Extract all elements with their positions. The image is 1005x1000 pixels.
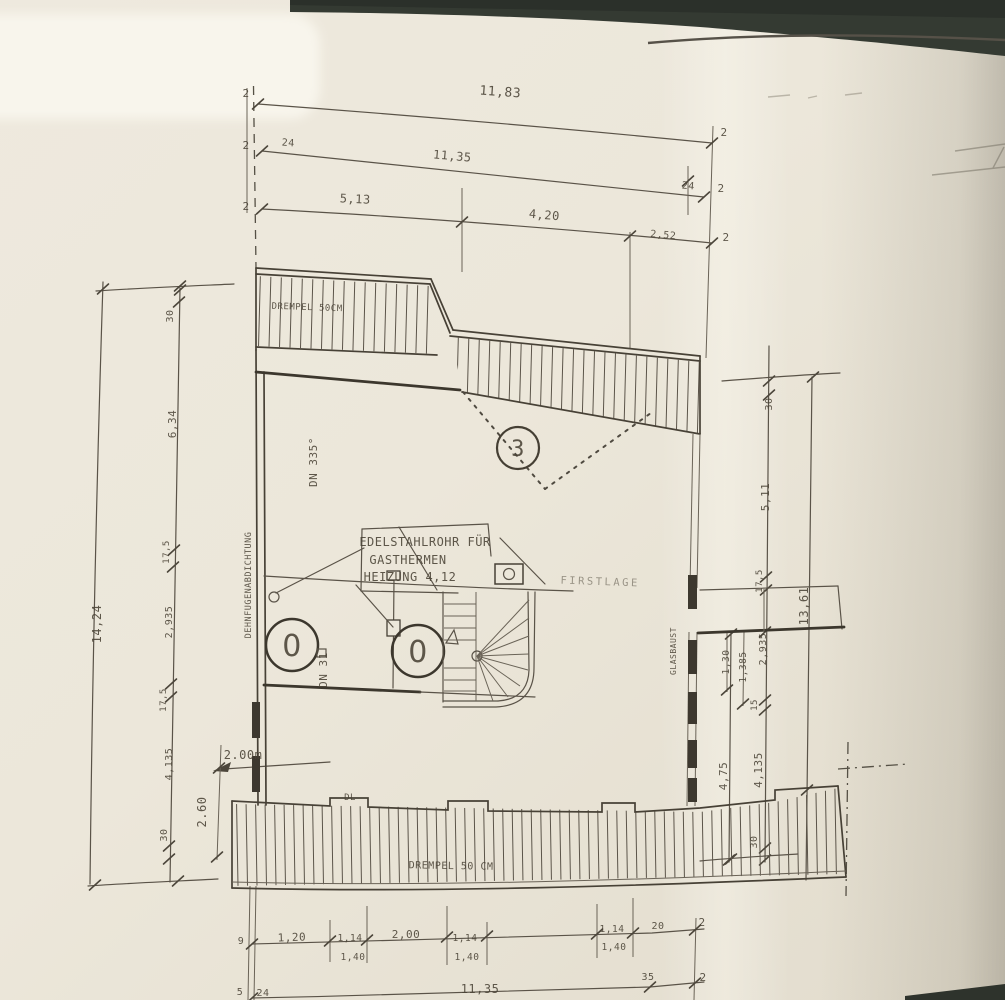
dim-label: 1,40 (455, 952, 480, 963)
dim-label: 1,40 (341, 952, 366, 963)
dim-label: 1,14 (338, 933, 363, 944)
annotation-drempel-bottom: DREMPEL 50 CM (409, 860, 494, 872)
dim-label-total-1424: 14,24 (90, 605, 104, 644)
dim-label-total-1183: 11,83 (479, 84, 522, 102)
dim-label: 1,40 (602, 942, 627, 953)
annotation-glass-block: GLASBAUST (669, 627, 678, 675)
dim-label: 9 (238, 936, 245, 947)
dim-label: 1,20 (277, 931, 306, 945)
annotation-duct-1: EDELSTAHLROHR FÜR (359, 533, 491, 549)
opening-marker-text-right: 0 (408, 635, 428, 670)
socket-symbol (495, 564, 523, 584)
annotation-dl: DL (344, 793, 356, 803)
dim-label: 35 (641, 972, 654, 983)
background-sheet-corner (0, 14, 320, 119)
dim-label: 17,5 (162, 540, 172, 564)
dim-label: 17,5 (159, 688, 169, 712)
dim-label: 4,75 (717, 762, 730, 791)
dim-label: 1,30 (721, 650, 732, 675)
dim-label: 30 (749, 835, 760, 848)
dim-label: 15 (750, 699, 760, 711)
dim-label: 2,52 (650, 229, 677, 242)
dim-label: 4,135 (164, 748, 175, 781)
dim-label: 2 (722, 231, 729, 244)
dim-label-200m: 2.00m (224, 748, 263, 762)
dim-label: 24 (281, 138, 295, 150)
dim-label: 1,385 (738, 651, 749, 682)
dim-label: 2 (698, 916, 705, 929)
dim-label-total-1135-bottom: 11,35 (461, 982, 500, 996)
annotation-duct-2: GASTHERMEN (369, 553, 446, 567)
dim-label: 2 (242, 87, 249, 100)
annotation-dn335: DN 335° (307, 437, 320, 487)
dim-label: 1,14 (600, 924, 625, 935)
dim-label: 30 (764, 397, 775, 410)
annotation-duct-3: HEIZUNG 4,12 (364, 570, 457, 584)
dim-label: 5 (237, 987, 244, 998)
dim-label: 24 (681, 180, 695, 192)
dim-label: 20 (651, 921, 664, 932)
dim-label-total-1361: 13,61 (797, 587, 811, 626)
blueprint-svg: 2 11,83 2 2 24 11,35 24 2 2 5,13 4,20 2,… (0, 0, 1005, 1000)
dim-label: 24 (256, 988, 269, 999)
dim-label: 5,13 (339, 191, 371, 207)
dim-label: 2 (242, 139, 249, 152)
dim-label: 30 (165, 309, 176, 322)
dim-label: 2 (717, 182, 724, 195)
dim-label: 2 (720, 126, 727, 139)
dim-label: 2,935 (758, 633, 769, 666)
dim-label: 17,5 (755, 569, 765, 593)
dim-label: 2 (242, 200, 249, 213)
annotation-dn31: DN 31 (317, 652, 330, 688)
position-marker-text: 3 (511, 437, 525, 462)
dim-label: 2,935 (164, 606, 175, 639)
dim-label: 6,34 (166, 410, 179, 439)
dim-label: 1,14 (453, 933, 478, 944)
annotation-expansion-joint: DEHNFUGENABDICHTUNG (244, 532, 254, 639)
dim-label: 5,11 (759, 483, 772, 512)
scanned-floor-plan-photo: 2 11,83 2 2 24 11,35 24 2 2 5,13 4,20 2,… (0, 0, 1005, 1000)
dim-label: 2,00 (392, 928, 421, 941)
dim-label-260: 2.60 (195, 797, 209, 828)
dim-label: 4,20 (528, 207, 560, 224)
opening-marker-text-left: 0 (282, 629, 302, 664)
dim-label: 4,135 (752, 752, 765, 788)
dim-label: 30 (159, 828, 170, 841)
dim-label: 2 (699, 971, 706, 984)
